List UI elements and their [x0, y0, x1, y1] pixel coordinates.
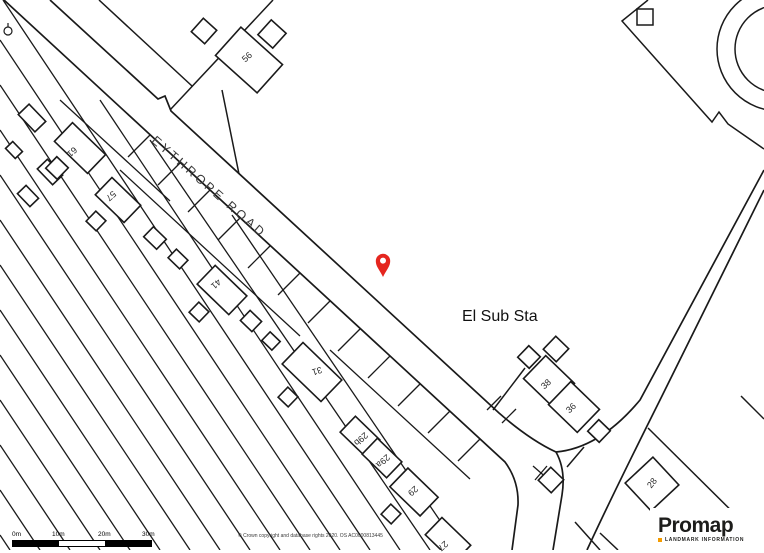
- scale-label-0m: 0m: [12, 531, 21, 538]
- plot-frontage-ticks: [128, 135, 480, 461]
- scale-label-30m: 30m: [142, 531, 155, 538]
- promap-logo: Promap LANDMARK INFORMATION: [650, 508, 764, 550]
- promap-logo-text: Promap: [658, 516, 733, 536]
- survey-mark-icon: [4, 23, 12, 35]
- plot-strip-lines: [0, 0, 470, 550]
- scale-label-20m: 20m: [98, 531, 111, 538]
- landmark-tagline: LANDMARK INFORMATION: [665, 537, 744, 543]
- copyright-attribution: © Crown copyright and database rights 20…: [238, 533, 383, 539]
- road-eythrope: [4, 0, 556, 550]
- scale-bar: 0m 10m 20m 30m: [12, 531, 152, 547]
- scale-label-10m: 10m: [52, 531, 65, 538]
- outbuilding-top-right: [637, 9, 653, 25]
- substation-label: El Sub Sta: [462, 308, 538, 326]
- roundabout-feature: [717, 0, 764, 111]
- landmark-accent-square-icon: [658, 538, 662, 542]
- scale-strip: [12, 540, 152, 547]
- location-pin-icon[interactable]: [376, 254, 390, 277]
- map-canvas[interactable]: EYTHROPE ROAD El Sub Sta 56 61 57 41 31 …: [0, 0, 764, 550]
- junction-ticks: [487, 396, 549, 480]
